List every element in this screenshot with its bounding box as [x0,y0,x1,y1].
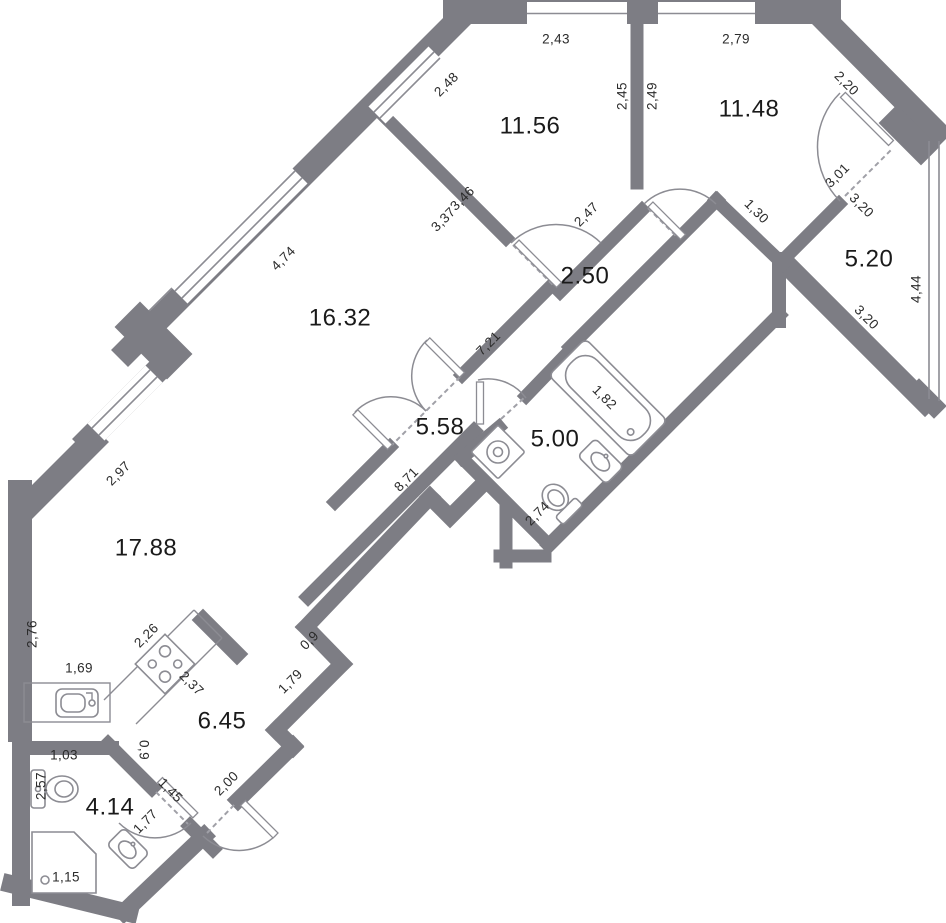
dimension-label: 1,69 [65,661,93,676]
room-area-label: 4.14 [86,793,135,820]
dimension-label: 2,57 [34,772,49,800]
dimension-label: 1,03 [50,748,78,763]
room-area-label: 6.45 [198,707,247,734]
dimension-label: 2,76 [25,620,40,648]
room-area-label: 5.00 [531,425,580,452]
room-area-label: 2.50 [561,262,610,289]
kitchen-sink-icon [56,689,98,717]
floor-plan-page: 11.56 11.48 5.20 2.50 16.32 5.58 5.00 17… [0,0,946,923]
room-area-label: 5.20 [845,245,894,272]
dimension-label: 1,15 [52,870,80,885]
room-area-label: 17.88 [115,534,178,561]
dimension-label: 2,49 [645,82,660,110]
room-area-label: 11.56 [500,112,561,139]
floor-plan-canvas: 11.56 11.48 5.20 2.50 16.32 5.58 5.00 17… [0,0,946,923]
dimension-label: 4,44 [909,275,924,303]
dimension-label: 0,9 [136,740,151,760]
dimension-label: 2,45 [615,82,630,110]
door-leaf [477,382,484,424]
room-area-label: 11.48 [719,95,780,122]
room-area-label: 16.32 [309,304,372,331]
room-area-label: 5.58 [416,413,465,440]
dimension-label: 2,43 [542,32,570,47]
dimension-label: 2,79 [722,32,750,47]
